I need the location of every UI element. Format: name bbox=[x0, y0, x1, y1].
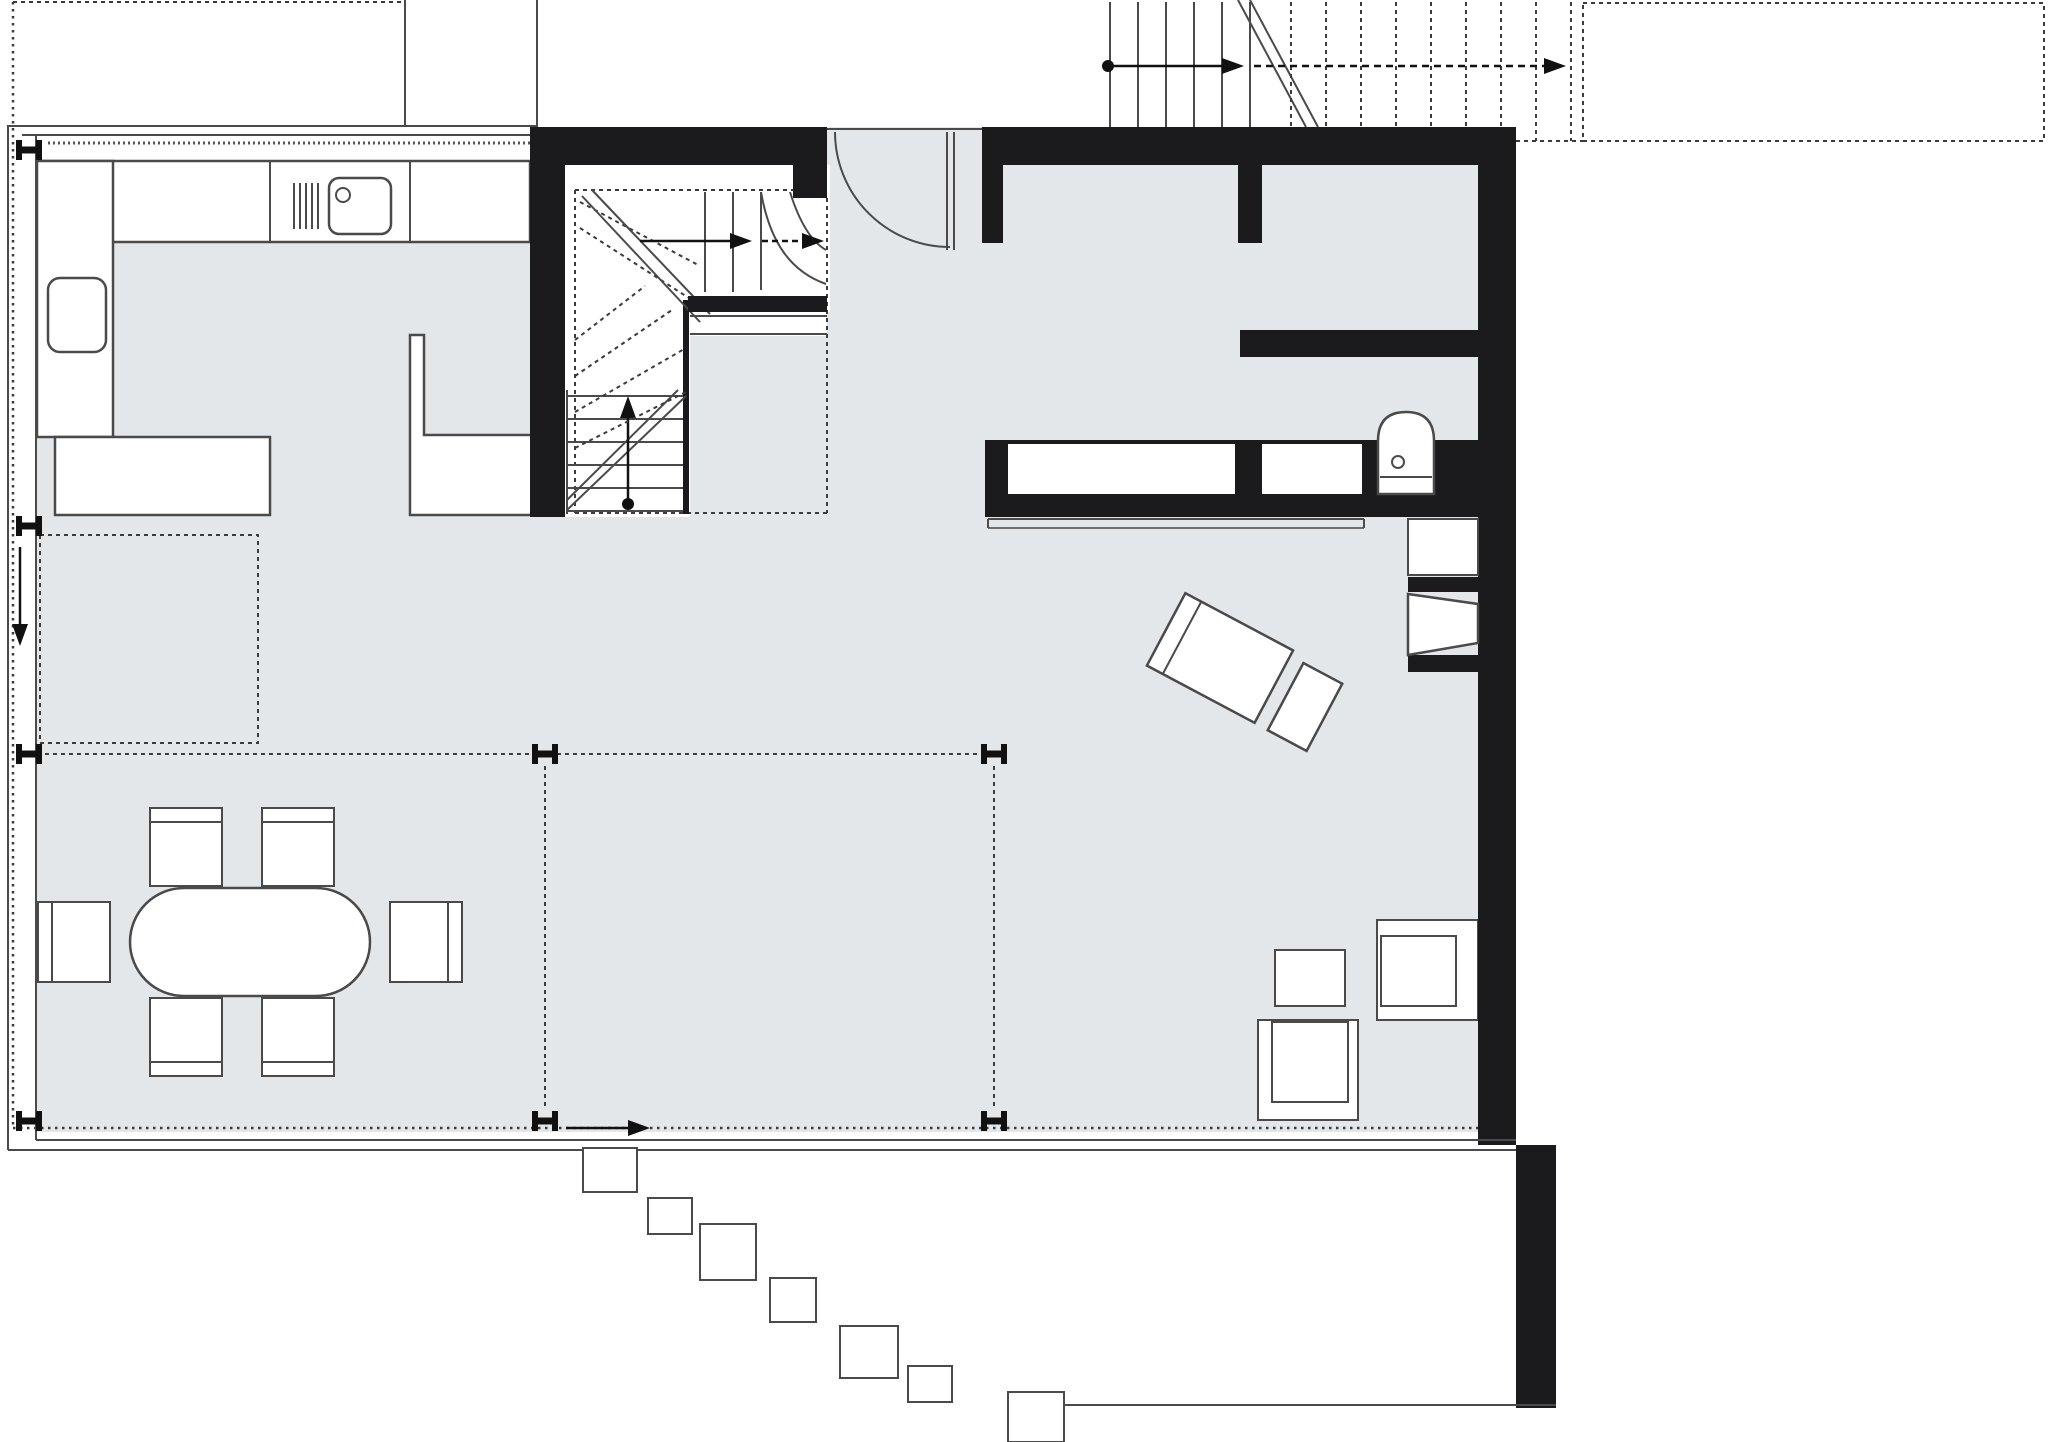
sink-icon bbox=[329, 178, 391, 234]
north-wall bbox=[530, 127, 793, 165]
armchair-bottom bbox=[1258, 1020, 1358, 1120]
closet-wall-stub bbox=[982, 165, 1003, 243]
fireplace bbox=[1408, 594, 1478, 655]
stepping-stone bbox=[700, 1224, 756, 1280]
dining-table bbox=[130, 888, 370, 996]
chimney-wall bbox=[1408, 577, 1478, 592]
dining-chair bbox=[390, 902, 462, 982]
closet-wall-stub bbox=[1238, 165, 1262, 243]
armchair-right bbox=[1377, 920, 1478, 1020]
dining-chair bbox=[262, 998, 334, 1076]
chimney-wall bbox=[1408, 655, 1478, 672]
stepping-stone bbox=[908, 1366, 952, 1402]
wall-niche bbox=[1262, 444, 1362, 494]
dining-chair bbox=[150, 808, 222, 886]
floor-plan-canvas bbox=[0, 0, 2048, 1442]
stepping-stone bbox=[583, 1148, 637, 1192]
dining-chair bbox=[150, 998, 222, 1076]
floor-plan-drawing bbox=[0, 0, 2048, 1442]
stepping-stone bbox=[840, 1326, 898, 1378]
toilet-icon bbox=[1378, 412, 1434, 494]
stepping-stone bbox=[1008, 1392, 1064, 1442]
appliance-icon bbox=[48, 278, 106, 352]
east-wall bbox=[1478, 127, 1516, 1145]
stair-half-wall bbox=[688, 296, 827, 312]
wall-niche bbox=[1008, 444, 1235, 494]
side-table bbox=[1275, 950, 1345, 1006]
stepping-stone bbox=[770, 1278, 816, 1322]
side-niche bbox=[1408, 519, 1478, 575]
dining-chair bbox=[262, 808, 334, 886]
terrace-wall bbox=[1516, 1145, 1556, 1408]
dining-chair bbox=[38, 902, 110, 982]
kitchen-island bbox=[55, 437, 270, 515]
stepping-stone bbox=[648, 1198, 692, 1234]
stair-wall bbox=[530, 127, 565, 517]
room-divider-wall bbox=[1240, 330, 1478, 357]
